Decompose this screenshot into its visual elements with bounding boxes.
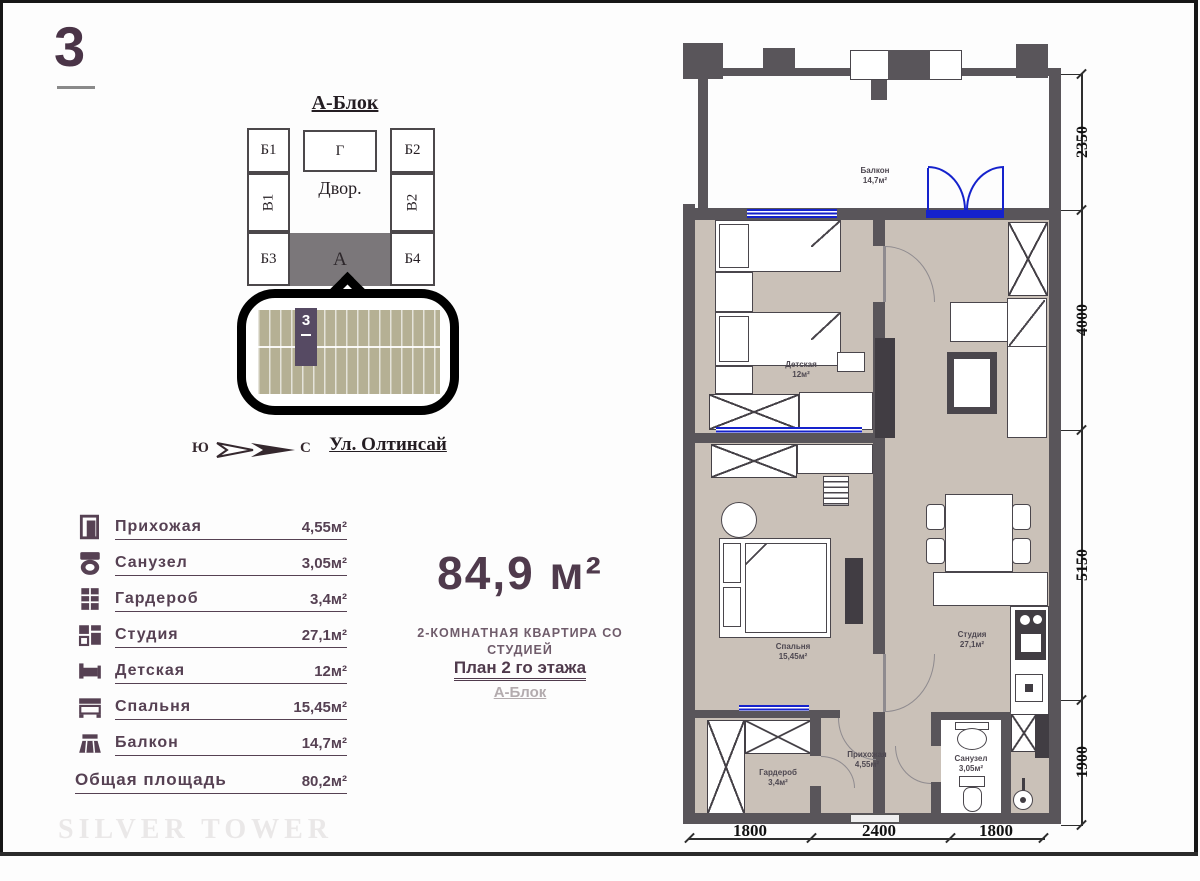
balcony-icon — [77, 730, 103, 756]
wardrobe-hall-wall — [810, 718, 821, 756]
sofa-seat-vertical — [1007, 346, 1047, 438]
kids-shelf — [799, 392, 873, 430]
right-outer-wall — [1049, 68, 1061, 823]
bedroom-dresser — [823, 476, 849, 506]
dining-chair — [1012, 538, 1031, 564]
room-area: 14,7м² — [843, 176, 907, 186]
wall-pillar — [1016, 44, 1048, 78]
sofa-corner-cushion — [1009, 300, 1045, 346]
room-area: 15,45м² — [749, 652, 837, 662]
wardrobe-label: Гардероб 3,4м² — [741, 768, 815, 787]
room-label: Балкон — [115, 734, 179, 752]
bed-icon — [77, 694, 103, 720]
dimension-line-vertical — [1081, 74, 1083, 825]
block-cell-v1: В1 — [247, 173, 290, 232]
kids-cabinet — [715, 366, 753, 394]
room-list-row: Гардероб3,4м² — [75, 590, 347, 624]
sink-basin — [1020, 615, 1030, 625]
room-row-studio: Студия27,1м² — [115, 626, 347, 648]
room-area: 15,45м² — [293, 699, 347, 716]
locator-position-number: 3 — [302, 312, 310, 329]
room-area: 12м² — [314, 663, 347, 680]
kids-wardrobe-xbox — [709, 394, 799, 430]
block-cell-b1: Б1 — [247, 128, 290, 173]
bedroom-tv — [845, 558, 863, 624]
bedroom-wardrobe-xbox — [711, 444, 797, 478]
dining-table — [945, 494, 1013, 572]
door-leaf — [883, 654, 886, 712]
room-row-kids: Детская12м² — [115, 662, 347, 684]
bed-pillow — [723, 543, 741, 583]
block-cell-b4: Б4 — [390, 232, 435, 286]
compass-west-label: Ю — [192, 440, 209, 457]
plan-floor-line: План 2 го этажа — [393, 658, 647, 678]
studio-label: Студия 27,1м² — [941, 630, 1003, 649]
room-area: 3,4м² — [741, 778, 815, 788]
wardrobe-closet-xbox-horizontal — [745, 720, 811, 754]
block-diagram: Б1 В1 Б3 Г Двор. А Б2 В2 Б4 — [247, 126, 437, 288]
bedroom-pouf — [721, 502, 757, 538]
room-label: Студия — [115, 626, 179, 644]
bed-pillow — [723, 587, 741, 627]
frame-right — [1194, 0, 1198, 856]
block-cell-v2-label: В2 — [404, 194, 421, 212]
street-name: Ул. Олтинсай — [318, 434, 458, 456]
appliance-knob — [1025, 684, 1033, 692]
room-name: Студия — [941, 630, 1003, 640]
room-name: Балкон — [843, 166, 907, 176]
room-name: Прихожая — [833, 750, 901, 760]
kids-bed-icon — [77, 658, 103, 684]
room-row-bathroom: Санузел3,05м² — [115, 554, 347, 576]
block-courtyard-label: Двор. — [290, 178, 390, 199]
french-door-leaf — [927, 168, 929, 210]
washbasin — [957, 728, 987, 750]
room-label: Детская — [115, 662, 185, 680]
apartment-type-line2: СТУДИЕЙ — [393, 643, 647, 657]
room-area: 27,1м² — [302, 627, 347, 644]
toilet-bowl — [963, 787, 982, 812]
room-label: Спальня — [115, 698, 191, 716]
room-name: Санузел — [939, 754, 1003, 764]
bedroom-shelf — [797, 444, 873, 474]
bathroom-left-wall — [931, 782, 941, 813]
lamp-center — [1020, 797, 1026, 803]
french-door-threshold — [926, 210, 1004, 218]
dining-chair — [1012, 504, 1031, 530]
total-area-value: 80,2м² — [302, 773, 347, 790]
frame-left — [0, 0, 3, 856]
sofa-seat-horizontal — [950, 302, 1008, 342]
block-diagram-title: А-Блок — [290, 92, 400, 115]
kids-bench — [837, 352, 865, 372]
bathroom-label: Санузел 3,05м² — [939, 754, 1003, 773]
block-cell-v1-label: В1 — [260, 194, 277, 212]
compass-arrow-icon — [209, 441, 297, 459]
window-blue-inner — [716, 427, 862, 433]
floor-plan-sheet: 3 А-Блок Б1 В1 Б3 Г Двор. А Б2 В2 Б4 3 Ю… — [0, 0, 1200, 881]
wardrobe-icon — [77, 586, 103, 612]
room-area: 3,05м² — [302, 555, 347, 572]
bedroom-label: Спальня 15,45м² — [749, 642, 837, 661]
door-leaf — [883, 246, 886, 302]
studio-icon — [77, 622, 103, 648]
room-area: 14,7м² — [302, 735, 347, 752]
french-door-arc-left — [928, 166, 966, 210]
french-door-leaf — [1002, 168, 1004, 210]
room-name: Детская — [761, 360, 841, 370]
plan-block-line: А-Блок — [393, 684, 647, 702]
kids-bed-2-pillow — [719, 316, 749, 362]
room-area: 12м² — [761, 370, 841, 380]
sheet-number: 3 — [54, 14, 85, 79]
room-list-row: Санузел3,05м² — [75, 554, 347, 588]
dim-1900: 1900 — [1074, 732, 1092, 792]
dim-1800-left: 1800 — [710, 821, 790, 841]
balcony-left-wall — [698, 76, 708, 208]
dim-1800-right: 1800 — [956, 821, 1036, 841]
block-cell-b3: Б3 — [247, 232, 290, 286]
room-label: Прихожая — [115, 518, 202, 536]
dim-2400: 2400 — [839, 821, 919, 841]
kitchen-counter-horizontal — [933, 572, 1048, 606]
room-row-wardrobe: Гардероб3,4м² — [115, 590, 347, 612]
block-cell-b2: Б2 — [390, 128, 435, 173]
room-row-bedroom: Спальня15,45м² — [115, 698, 347, 720]
kids-room-label: Детская 12м² — [761, 360, 841, 379]
plan-block-text: А-Блок — [494, 684, 547, 701]
room-list-row: Спальня15,45м² — [75, 698, 347, 732]
watermark: SILVER TOWER — [58, 814, 333, 846]
french-door-arc-right — [966, 166, 1004, 210]
stove-top — [1021, 634, 1041, 652]
room-label: Гардероб — [115, 590, 199, 608]
bathroom-left-wall — [931, 712, 941, 746]
toilet-icon — [77, 550, 103, 576]
room-row-hallway: Прихожая4,55м² — [115, 518, 347, 540]
apartment-type-line1: 2-КОМНАТНАЯ КВАРТИРА СО — [393, 626, 647, 640]
coffee-table — [947, 352, 997, 414]
wall-stub — [871, 80, 887, 100]
floor-plan: Балкон 14,7м² Детская — [683, 38, 1113, 868]
window-blue — [747, 209, 837, 218]
kids-bed-2-fold — [811, 313, 840, 340]
room-name: Спальня — [749, 642, 837, 652]
kids-bedroom-wall — [695, 433, 873, 443]
total-area-label: Общая площадь — [75, 770, 227, 790]
bed-blanket-fold — [745, 543, 767, 565]
block-cell-g: Г — [303, 130, 377, 172]
utility-closet-xbox — [1011, 714, 1037, 752]
room-area: 4,55м² — [302, 519, 347, 536]
window-blue-inner — [739, 705, 809, 711]
wardrobe-hall-wall — [810, 786, 821, 813]
room-name: Гардероб — [741, 768, 815, 778]
balcony-divider-wall — [683, 208, 1061, 220]
kids-nightstand — [715, 272, 753, 312]
tv-unit — [875, 338, 895, 438]
frame-top — [0, 0, 1197, 3]
wardrobe-closet-xbox-vertical — [707, 720, 745, 814]
dim-2350: 2350 — [1074, 112, 1092, 172]
room-list-row: Студия27,1м² — [75, 626, 347, 660]
shaft — [1035, 714, 1049, 758]
room-area: 27,1м² — [941, 640, 1003, 650]
dim-4000: 4000 — [1074, 290, 1092, 350]
room-list: Прихожая4,55м² Санузел3,05м² Гардероб3,4… — [75, 512, 347, 812]
dining-chair — [926, 504, 945, 530]
room-row-balcony: Балкон14,7м² — [115, 734, 347, 756]
balcony-room-label: Балкон 14,7м² — [843, 166, 907, 185]
toilet-tank — [959, 776, 985, 787]
room-label: Санузел — [115, 554, 188, 572]
room-area: 4,55м² — [833, 760, 901, 770]
room-area: 3,4м² — [310, 591, 347, 608]
apartment-total-area: 84,9 м² — [415, 546, 625, 600]
inner-wall — [873, 220, 885, 246]
hallway-label: Прихожая 4,55м² — [833, 750, 901, 769]
block-cell-v2: В2 — [390, 173, 435, 232]
room-list-row: Детская12м² — [75, 662, 347, 696]
kids-bed-1-pillow — [719, 224, 749, 268]
door-icon — [77, 514, 103, 540]
kids-bed-1-fold — [811, 221, 840, 247]
wall-pillar — [888, 50, 930, 80]
studio-wardrobe-xbox — [1008, 222, 1048, 296]
bathroom-top-wall — [931, 712, 1011, 720]
sheet-number-underline — [57, 86, 95, 89]
dining-chair — [926, 538, 945, 564]
total-area-row: Общая площадь 80,2м² — [75, 770, 347, 794]
locator-position-band: 3 — [295, 308, 317, 366]
compass-east-label: С — [300, 440, 311, 457]
wardrobe-top-wall — [695, 710, 840, 718]
sink-basin — [1033, 615, 1042, 624]
room-list-row: Балкон14,7м² — [75, 734, 347, 768]
plan-floor-text: План 2 го этажа — [454, 658, 586, 681]
room-area: 3,05м² — [939, 764, 1003, 774]
building-strip — [258, 310, 440, 394]
left-outer-wall — [683, 204, 695, 823]
room-list-row: Прихожая4,55м² — [75, 518, 347, 552]
dim-5150: 5150 — [1074, 535, 1092, 595]
